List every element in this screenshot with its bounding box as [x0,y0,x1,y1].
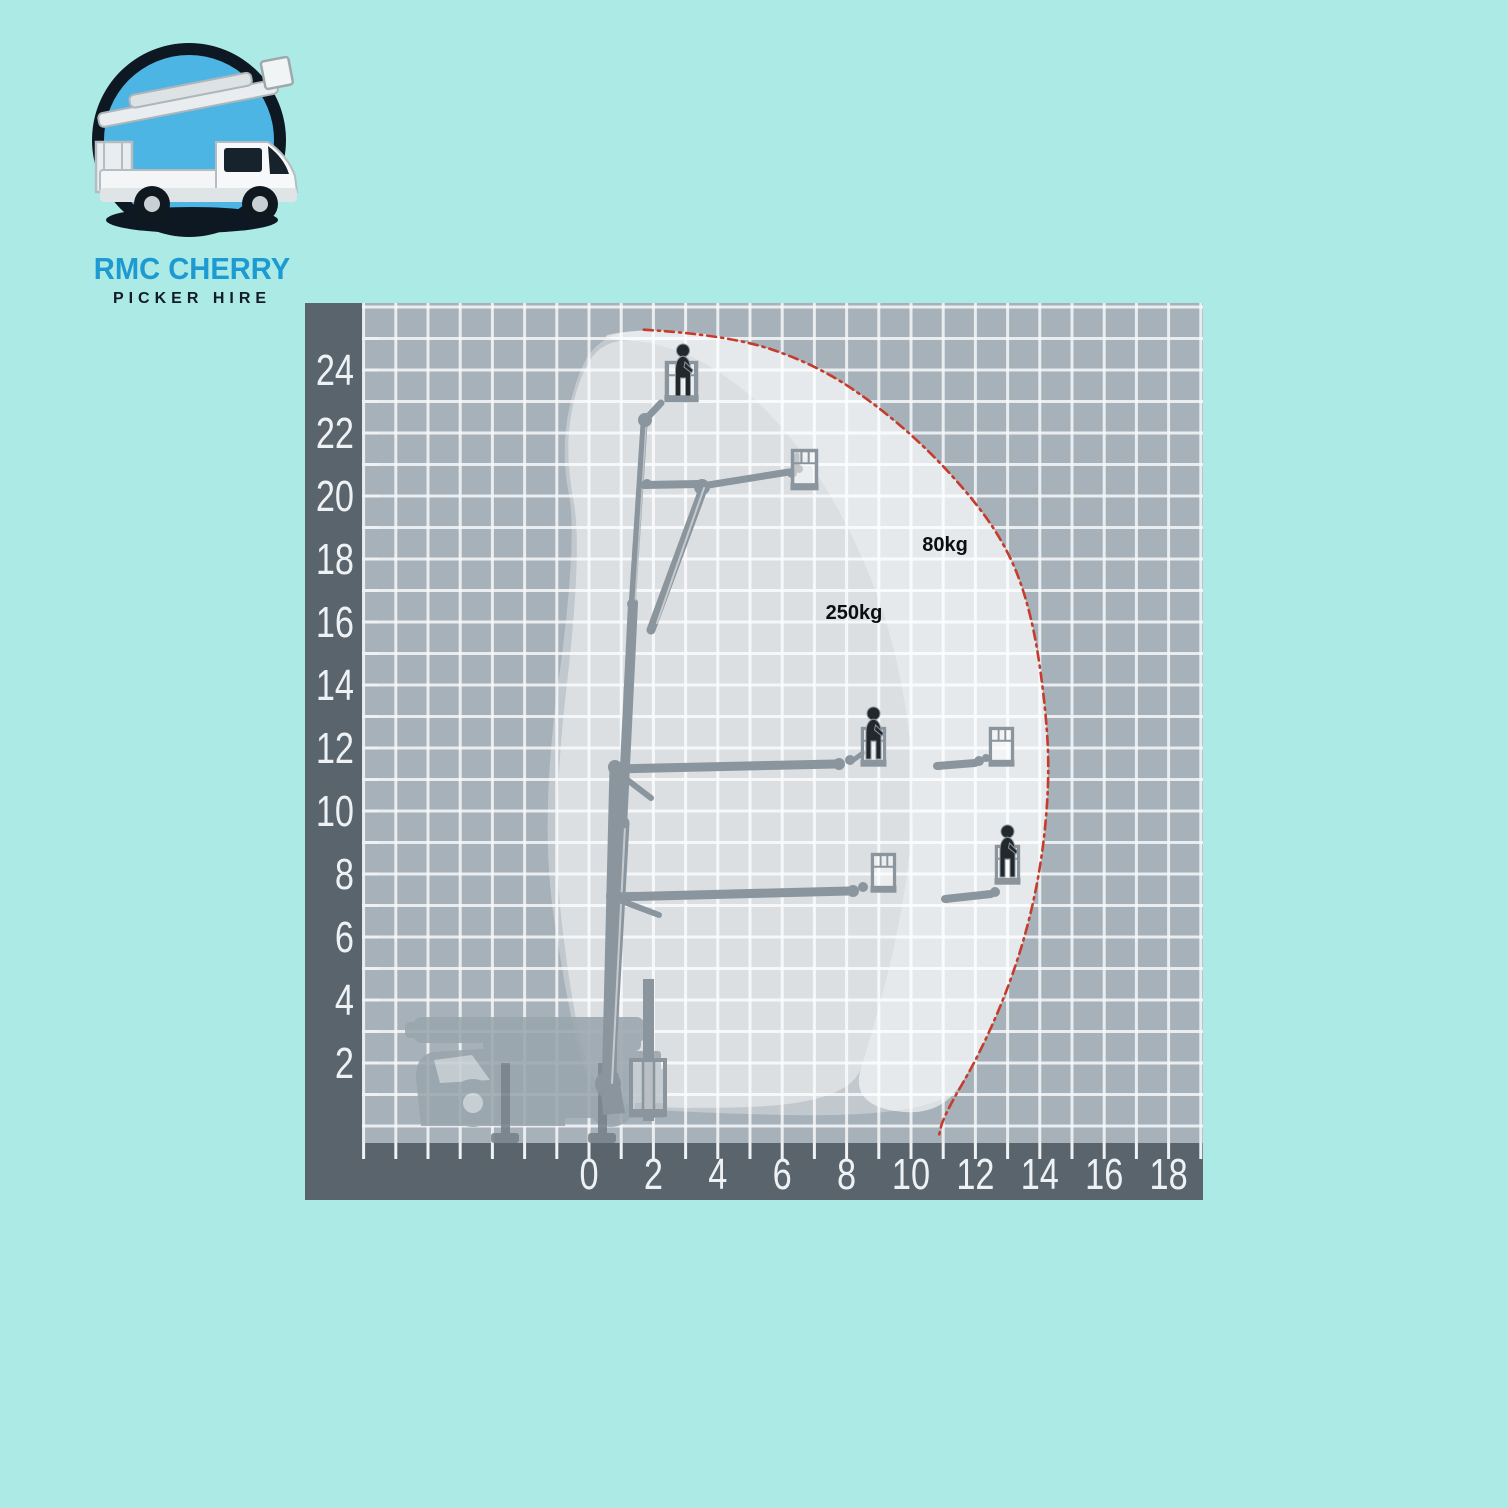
x-axis-label: 4 [708,1150,727,1199]
y-axis-label: 20 [316,472,354,521]
label-80kg: 80kg [922,534,968,556]
x-axis-label: 18 [1150,1150,1188,1199]
logo-subtitle: PICKER HIRE [62,290,322,308]
x-axis-label: 0 [579,1150,598,1199]
label-250kg: 250kg [826,602,883,624]
y-axis-label: 18 [316,535,354,584]
x-axis-label: 12 [956,1150,994,1199]
x-axis-label: 8 [837,1150,856,1199]
y-axis-label: 10 [316,787,354,836]
stowed-basket [629,1060,667,1117]
brand-logo: RMC CHERRY PICKER HIRE [62,38,322,308]
y-axis-label: 2 [335,1039,354,1088]
basket-7m [871,854,896,892]
y-axis-label: 14 [316,661,354,710]
envelope-diagram-svg: 02468101214161824681012141618202224 250k… [305,303,1203,1200]
y-axis-label: 4 [335,976,354,1025]
y-axis-label: 16 [316,598,354,647]
y-axis-label: 12 [316,724,354,773]
x-axis-label: 16 [1085,1150,1123,1199]
x-axis-label: 2 [644,1150,663,1199]
x-axis-label: 6 [773,1150,792,1199]
logo-title: RMC CHERRY [70,251,314,287]
y-axis-label: 6 [335,913,354,962]
y-axis-label: 24 [316,346,354,395]
logo-truck-graphic [76,38,308,262]
working-envelope-chart: 02468101214161824681012141618202224 250k… [305,303,1203,1200]
y-axis-label: 8 [335,850,354,899]
x-axis-label: 14 [1021,1150,1059,1199]
basket-20m [791,451,818,490]
basket-12m-right [989,728,1014,766]
y-axis-label: 22 [316,409,354,458]
x-axis-band [305,1143,1203,1200]
x-axis-label: 10 [892,1150,930,1199]
